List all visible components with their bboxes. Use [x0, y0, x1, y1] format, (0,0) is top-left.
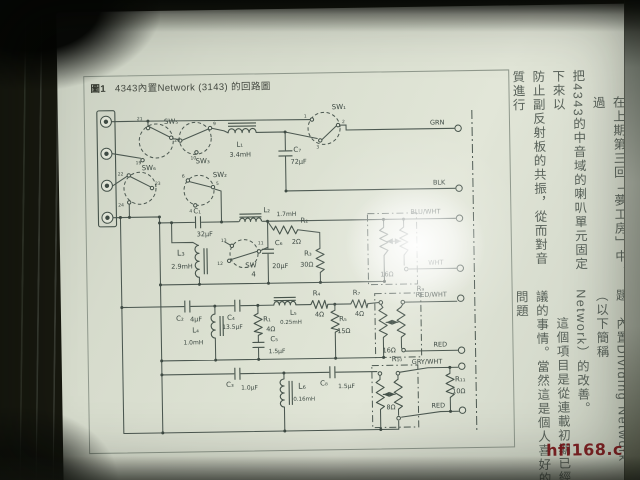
c2-val: 4μF — [190, 315, 202, 323]
sw5-pin-21: 21 — [137, 116, 143, 122]
l3-ref: L₃ — [177, 249, 185, 258]
wire-blk: BLK — [433, 178, 446, 186]
sw1-pin-2: 2 — [342, 119, 345, 125]
wire-blu-wht: BLU/WHT — [410, 208, 440, 216]
sw5-label: SW₅ — [164, 118, 178, 126]
r3-ref: R₃ — [304, 250, 312, 258]
att1-val: 16Ω — [380, 270, 393, 278]
c5-ref: C₅ — [270, 335, 278, 343]
sw4-pin-12: 12 — [217, 261, 223, 267]
wires — [112, 116, 459, 433]
wire-gry-wht: GRY/WHT — [412, 358, 443, 366]
resistor-r7 — [351, 300, 368, 308]
r4-val: 4Ω — [315, 310, 324, 318]
inductor-l2 — [239, 218, 261, 222]
inductor-l3 — [195, 245, 200, 277]
capacitor-c5 — [252, 342, 264, 347]
l4-ref: L₄ — [192, 326, 199, 334]
l5-ref: L₅ — [290, 309, 297, 317]
r1-ref: R₁ — [263, 315, 271, 323]
capacitor-c6 — [262, 249, 274, 253]
capacitor-c8 — [330, 366, 335, 378]
c6-val: 20μF — [272, 262, 289, 270]
r11-ref: R₁₁ — [455, 375, 466, 383]
sw2-pin-4: 4 — [189, 208, 192, 214]
r2-val: 2Ω — [292, 238, 301, 246]
capacitor-c2 — [185, 300, 190, 312]
c4-val: 13.5μF — [222, 324, 243, 331]
r5-ref: R₅ — [339, 315, 347, 323]
article-column: 防止副反射板的共振，從而對音質進行 — [507, 70, 550, 277]
r4-ref: R₄ — [313, 289, 321, 297]
c1-ref: C₁ — [193, 207, 201, 215]
sw4-label-2: 4 — [251, 270, 256, 278]
wire-wht: WHT — [428, 258, 443, 266]
sw1-pin-1: 1 — [304, 114, 307, 120]
r10-ref: R₁₀ — [392, 355, 403, 363]
sw4-pin-13: 13 — [221, 238, 227, 244]
page-edge-line — [35, 0, 43, 480]
sw6-pin-22: 22 — [118, 171, 124, 177]
l2-ref: L₂ — [263, 206, 270, 214]
wire-red-low: RED — [431, 401, 445, 409]
c5-val: 1.5μF — [269, 348, 286, 355]
l1-val: 3.4mH — [229, 150, 251, 158]
schematic-labels: SW₅212019SW₃910SW₆222324SW₂654SW₁123SW41… — [117, 101, 466, 415]
r1-val: 4Ω — [266, 325, 275, 333]
inductor-l5 — [274, 301, 296, 305]
terminal-blu-wht — [456, 215, 462, 221]
figure-1: 圖14343內置Network (3143) 的回路圖 — [83, 69, 515, 454]
terminal-grn — [455, 125, 461, 131]
sw2-label: SW₂ — [213, 171, 227, 179]
resistor-r3 — [316, 248, 324, 272]
att3-val: 8Ω — [386, 403, 395, 411]
l4-val: 1.0mH — [183, 339, 203, 346]
sw1-pin-3: 3 — [316, 144, 319, 150]
capacitor-c3 — [235, 368, 240, 380]
l1-ref: L₁ — [236, 141, 243, 149]
r5-val: 15Ω — [337, 327, 350, 335]
sw4-label: SW — [245, 261, 257, 269]
circuit-diagram: SW₅212019SW₃910SW₆222324SW₂654SW₁123SW41… — [83, 69, 515, 454]
c8-val: 1.5μF — [338, 383, 355, 390]
inductor-l6 — [280, 379, 284, 407]
page-edge-line — [19, 0, 27, 480]
c4-ref: C₄ — [227, 314, 235, 322]
switch-sw3-circle — [179, 122, 211, 154]
sw6-label: SW₆ — [142, 164, 156, 172]
sw2-pin-6: 6 — [182, 174, 185, 180]
switch-sw5-circle — [139, 124, 174, 159]
wire-red-wht: RED/WHT — [416, 290, 447, 298]
sw5-pin-20: 20 — [174, 138, 180, 144]
sw4-pin-11: 11 — [258, 240, 264, 246]
wire-red-mid: RED — [433, 340, 447, 348]
input-terminal-block — [97, 111, 117, 227]
inductor-l4 — [211, 314, 215, 338]
terminal-blk — [456, 185, 462, 191]
terminal-red-low — [459, 407, 465, 413]
article-column: 把4343的中音域的喇叭單元固定下來以 — [547, 69, 590, 276]
capacitor-c1 — [195, 216, 200, 228]
resistor-r4 — [311, 300, 328, 308]
chassis-boundary-line — [472, 110, 477, 430]
terminal-gry-wht — [459, 363, 465, 369]
c6-ref: C₆ — [275, 239, 283, 247]
l6-val: 0.16mH — [293, 397, 315, 403]
sw3-label: SW₃ — [196, 157, 210, 165]
r7-val: 4Ω — [355, 310, 364, 318]
r11-val: 10Ω — [452, 387, 465, 395]
sw2-pin-5: 5 — [216, 181, 219, 187]
right-page-edge — [624, 0, 640, 480]
c7-ref: C₇ — [293, 146, 301, 154]
r3-val: 30Ω — [300, 261, 313, 269]
l3-val: 2.9mH — [171, 262, 193, 270]
r7-ref: R₇ — [353, 289, 361, 297]
c3-ref: C₃ — [226, 381, 234, 389]
l2-val: 1.7mH — [276, 211, 296, 218]
terminal-red-wht — [458, 295, 464, 301]
book-photo: 圖14343內置Network (3143) 的回路圖 — [0, 0, 640, 480]
switch-arms — [129, 123, 338, 261]
sw6-pin-23: 23 — [155, 181, 161, 187]
article-paragraph-band-1: 在上期第三回「夢工房」中，透過把4343的中音域的喇叭單元固定下來以防止副反射板… — [505, 69, 630, 277]
switch-sw1-circle — [308, 112, 340, 144]
r2-ref: R₂ — [300, 217, 308, 225]
capacitor-c4 — [235, 300, 240, 312]
sw3-pin-9: 9 — [213, 121, 216, 127]
terminal-red-mid — [458, 347, 464, 353]
c8-ref: C₈ — [320, 379, 328, 387]
resistor-r1 — [254, 313, 262, 335]
sw3-pin-10: 10 — [190, 155, 196, 161]
att2-val: 16Ω — [383, 346, 396, 354]
inductor-l1 — [228, 128, 256, 132]
c3-val: 1.0μF — [241, 384, 258, 391]
c7-val: 72μF — [291, 158, 308, 166]
capacitor-c7 — [278, 151, 292, 156]
c2-ref: C₂ — [176, 315, 184, 323]
terminal-wht — [457, 265, 463, 271]
sw1-label: SW₁ — [332, 103, 346, 111]
l6-ref: L₆ — [298, 382, 306, 391]
magazine-page: 圖14343內置Network (3143) 的回路圖 — [56, 4, 638, 480]
output-terminals — [455, 125, 466, 413]
resistor-r2 — [274, 226, 298, 234]
sw6-pin-24: 24 — [118, 202, 124, 208]
l5-val: 0.25mH — [280, 320, 302, 326]
c1-val: 32μF — [197, 230, 214, 238]
wire-grn: GRN — [430, 118, 445, 126]
